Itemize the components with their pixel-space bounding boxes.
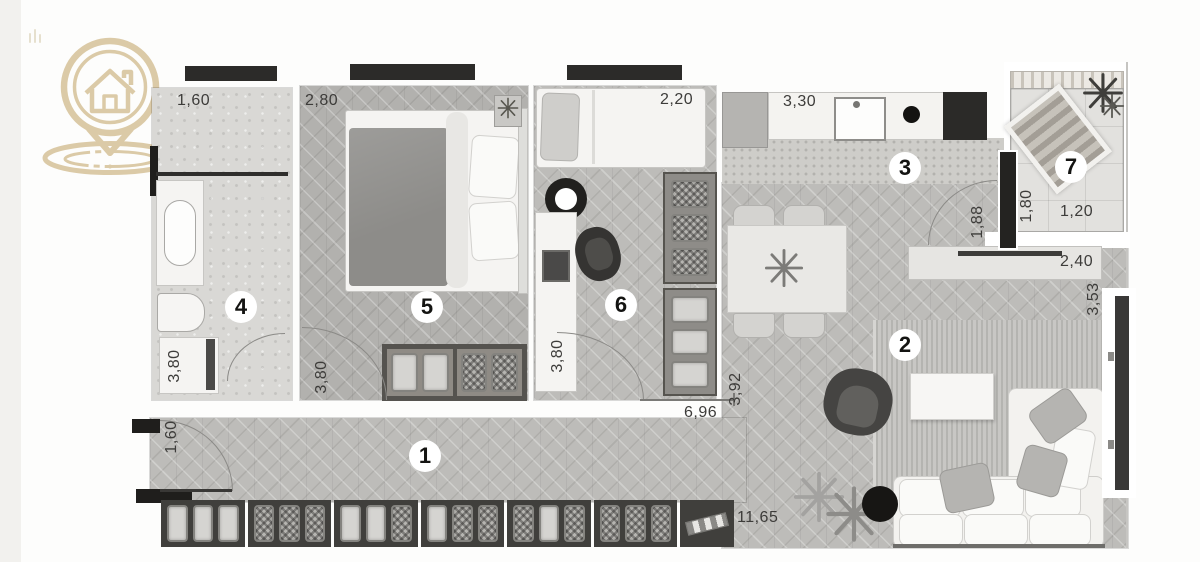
wardrobe-box-woven xyxy=(625,505,646,542)
window-bedroom2 xyxy=(567,65,682,80)
shower-partition xyxy=(156,172,288,176)
shelf-box-woven xyxy=(671,180,709,208)
living-window-glass xyxy=(1115,296,1129,490)
burner xyxy=(903,106,920,123)
wardrobe-box-woven xyxy=(600,505,621,542)
dim-tick-line xyxy=(640,399,734,401)
wardrobe-module xyxy=(334,500,418,547)
wardrobe-box-woven xyxy=(279,505,300,542)
sofa-seat-cushion xyxy=(1029,514,1091,546)
sofa-seat-cushion xyxy=(964,514,1028,546)
shelving-lower xyxy=(663,288,717,396)
wardrobe-module xyxy=(161,500,245,547)
dim-sideboard-width: 2,40 xyxy=(1060,253,1093,271)
window-bathroom xyxy=(185,66,277,81)
dim-balcony-depth: 1,80 xyxy=(1018,189,1036,222)
room-badge-hallway: 1 xyxy=(409,440,441,472)
dim-hall-segment: 6,96 xyxy=(684,404,717,422)
wardrobe-box-plain xyxy=(427,505,448,542)
wardrobe-row xyxy=(161,500,734,547)
bed-headboard xyxy=(518,108,528,294)
bedroom1-wardrobe xyxy=(382,344,527,401)
room-badge-living: 2 xyxy=(889,329,921,361)
plant-pot xyxy=(862,486,898,522)
bed-pillow-top xyxy=(468,134,520,199)
wardrobe-box-woven xyxy=(513,505,534,542)
balcony-sliding-door xyxy=(998,150,1018,250)
living-window-handle-top xyxy=(1108,352,1114,361)
shelf-box-plain xyxy=(671,296,709,323)
dim-living-depth: 3,53 xyxy=(1085,282,1103,315)
left-margin-strip xyxy=(0,0,21,562)
house-icon xyxy=(86,71,134,111)
shelving-upper xyxy=(663,172,717,284)
wardrobe-module xyxy=(507,500,591,547)
single-bed-blanket-fold xyxy=(592,90,595,164)
kitchen-sink xyxy=(834,97,886,141)
wardrobe-module xyxy=(248,500,332,547)
table-centerpiece-plant xyxy=(762,246,806,290)
faucet xyxy=(853,101,860,108)
room-badge-bathroom: 4 xyxy=(225,291,257,323)
shelf-box-woven xyxy=(671,214,709,242)
bedside-stool-top xyxy=(555,188,577,210)
shelf-box-woven xyxy=(671,248,709,276)
wardrobe-box-plain xyxy=(167,505,188,542)
hallway-floor xyxy=(150,418,746,502)
dim-kitchen-width: 3,30 xyxy=(783,93,816,111)
wardrobe-box-woven xyxy=(564,505,585,542)
shelf-box-plain xyxy=(671,329,709,356)
dim-bathroom-width: 1,60 xyxy=(177,92,210,110)
dim-bedroom1-width: 2,80 xyxy=(305,92,338,110)
wardrobe-box-woven xyxy=(491,353,518,392)
room-badge-bedroom2: 6 xyxy=(605,289,637,321)
dim-bedroom1-depth: 3,80 xyxy=(313,360,331,393)
wardrobe-box-plain xyxy=(193,505,214,542)
wardrobe-box-plain xyxy=(422,353,449,392)
cooktop xyxy=(943,92,987,140)
wardrobe-module xyxy=(680,500,734,547)
wardrobe-box-woven xyxy=(391,505,412,542)
living-window-handle-bottom xyxy=(1108,440,1114,449)
dim-bathroom-depth: 3,80 xyxy=(166,349,184,382)
window-bedroom1 xyxy=(350,64,475,80)
wardrobe-section xyxy=(387,349,453,396)
coffee-table xyxy=(910,373,994,420)
dim-entry-width: 1,60 xyxy=(163,420,181,453)
wardrobe-box-woven xyxy=(651,505,672,542)
wardrobe-box-woven xyxy=(452,505,473,542)
sofa-seat-cushion xyxy=(899,514,963,546)
wardrobe-section xyxy=(457,349,523,396)
dim-hall-length: 11,65 xyxy=(737,509,778,527)
wardrobe-box-woven xyxy=(305,505,326,542)
dim-bedroom2-width: 2,20 xyxy=(660,91,693,109)
balcony-plant-small xyxy=(1098,92,1126,120)
wardrobe-box-plain xyxy=(391,353,418,392)
entry-door-leaf xyxy=(160,489,232,492)
shower-glass-edge xyxy=(206,339,215,390)
wardrobe-box-woven xyxy=(254,505,275,542)
nightstand-plant xyxy=(496,96,520,120)
sideboard-detail-line xyxy=(958,251,1062,256)
wardrobe-module xyxy=(421,500,505,547)
floor-plan-canvas: 1 2 3 4 5 6 7 1,60 2,80 2,20 3,30 1,20 2… xyxy=(0,0,1200,562)
room-badge-bedroom1: 5 xyxy=(411,291,443,323)
wardrobe-slanted-item xyxy=(685,512,729,536)
wardrobe-box-plain xyxy=(366,505,387,542)
dim-hall-depth: 3,92 xyxy=(727,372,745,405)
dining-chair xyxy=(783,313,825,338)
dim-kitchen-depth: 1,88 xyxy=(969,205,987,238)
wardrobe-box-woven xyxy=(461,353,488,392)
single-bed-pillow xyxy=(540,92,580,161)
toilet xyxy=(157,293,205,332)
bed-duvet xyxy=(349,128,448,286)
entry-jamb-top xyxy=(132,419,160,433)
wardrobe-box-woven xyxy=(478,505,499,542)
dim-bedroom2-depth: 3,80 xyxy=(549,339,567,372)
room-badge-kitchen: 3 xyxy=(889,152,921,184)
laptop xyxy=(542,250,570,282)
bathroom-sink xyxy=(164,200,196,266)
living-bottom-wall-line xyxy=(893,544,1105,548)
dining-chair xyxy=(733,313,775,338)
bed-folded-sheet xyxy=(446,112,468,288)
wardrobe-module xyxy=(594,500,678,547)
bed-pillow-bottom xyxy=(468,200,520,261)
wardrobe-box-plain xyxy=(340,505,361,542)
wardrobe-box-plain xyxy=(218,505,239,542)
dim-balcony-width: 1,20 xyxy=(1060,203,1093,221)
shelf-box-plain xyxy=(671,361,709,388)
wardrobe-box-plain xyxy=(539,505,560,542)
fridge xyxy=(722,92,768,148)
room-badge-balcony: 7 xyxy=(1055,151,1087,183)
